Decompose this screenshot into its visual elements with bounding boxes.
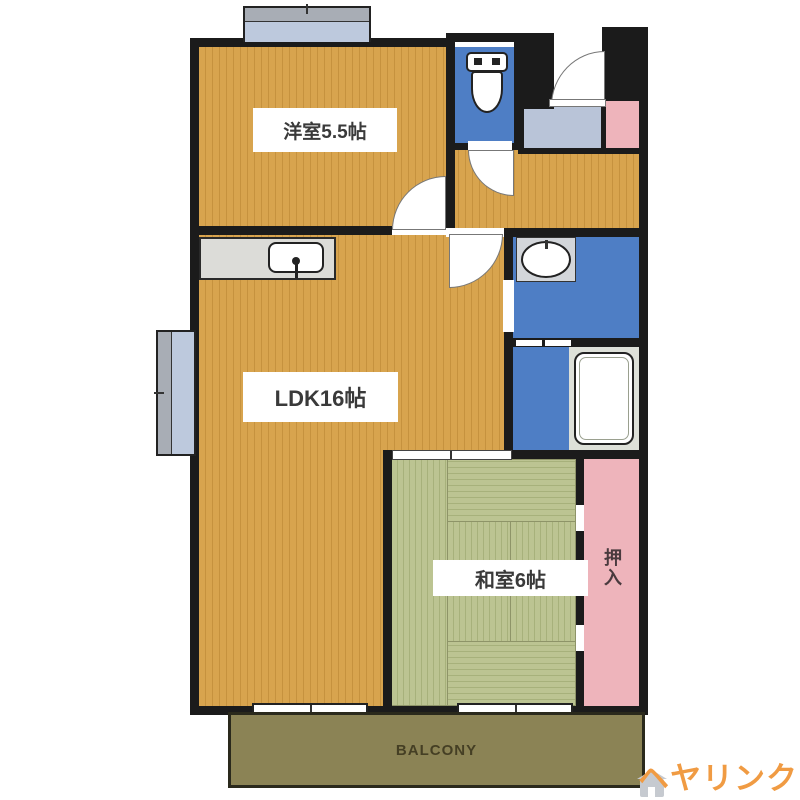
floor-plan-canvas: 洋室5.5帖 LDK16帖 和室6帖 押入 BALCONY ヘヤリンク: [0, 0, 800, 800]
closet-fusuma-notch: [576, 505, 584, 531]
ldk-label: LDK16帖: [243, 372, 398, 422]
ldk-label-text: LDK16帖: [275, 381, 367, 413]
closet-label-text: 押入: [602, 548, 622, 588]
wall-western-bottom: [195, 226, 392, 235]
bathroom-sliding-panel: [545, 340, 571, 346]
left-window: [156, 330, 196, 456]
tatami-mat: [447, 459, 576, 522]
toilet-tank-icon: [466, 52, 508, 72]
japanese-room-label: 和室6帖: [433, 560, 588, 596]
toilet-button: [492, 58, 500, 65]
kitchen-faucet-stem: [295, 264, 298, 278]
western-room-label-text: 洋室5.5帖: [283, 117, 366, 144]
entry-door-leaf: [549, 99, 606, 107]
japanese-room-sliding-door: [392, 450, 512, 460]
washbasin-counter: [516, 237, 576, 282]
left-window-tick: [154, 392, 164, 394]
bathroom-sliding-panel: [516, 340, 542, 346]
wall-washroom-top: [504, 228, 644, 237]
wall-toilet-top: [446, 33, 524, 42]
wall-entrance-closet-divider: [601, 100, 606, 154]
washroom-door-opening: [503, 280, 514, 332]
bathtub-icon: [574, 352, 634, 445]
tatami-mat: [447, 641, 576, 706]
western-room-label: 洋室5.5帖: [253, 108, 397, 152]
closet-label: 押入: [599, 548, 625, 638]
wall-pillar-top-right: [602, 27, 648, 101]
watermark-text: ヘヤリンク: [638, 753, 798, 798]
top-window-tick: [306, 4, 308, 14]
entrance-side-closet: [606, 101, 639, 148]
entrance-floor: [524, 104, 601, 148]
wall-pillar-left-of-door: [518, 33, 554, 109]
wall-entrance-bottom: [518, 148, 644, 154]
wall-japanese-room-left: [383, 450, 392, 708]
watermark: ヘヤリンク: [636, 745, 798, 797]
balcony-label-text: BALCONY: [396, 742, 477, 759]
closet-fusuma-notch: [576, 625, 584, 651]
washbasin-faucet-icon: [545, 240, 548, 249]
balcony: BALCONY: [228, 712, 645, 788]
kitchen-counter: [199, 237, 336, 280]
left-window-glass: [171, 332, 194, 454]
wall-entrance-left: [518, 100, 524, 154]
top-window: [243, 6, 371, 42]
top-window-glass: [245, 21, 369, 42]
bathtub-inner-line: [579, 357, 629, 440]
wall-western-right: [446, 38, 455, 236]
sliding-door-divider: [450, 451, 452, 459]
toilet-button: [474, 58, 482, 65]
entry-door-swing: [551, 51, 605, 106]
japanese-room-label-text: 和室6帖: [475, 564, 546, 593]
bathtub-surround: [569, 347, 639, 450]
wall-right: [639, 97, 648, 715]
